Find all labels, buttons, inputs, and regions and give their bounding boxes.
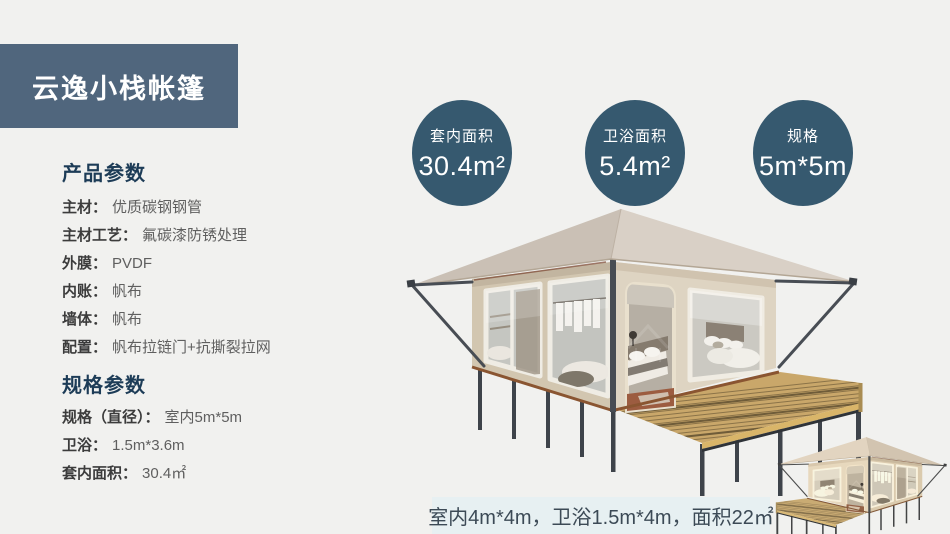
product-title: 云逸小栈帐篷: [32, 67, 206, 106]
param-label: 墙体：: [62, 311, 107, 328]
spec-params-heading: 规格参数: [62, 374, 407, 398]
param-value: 1.5m*3.6m: [112, 437, 185, 454]
param-row-material-craft: 主材工艺：氟碳漆防锈处理: [62, 222, 407, 250]
param-label: 套内面积：: [62, 465, 137, 482]
param-value: 帆布: [112, 311, 142, 328]
param-label: 主材：: [62, 199, 107, 216]
spec-row-bathroom: 卫浴：1.5m*3.6m: [62, 432, 407, 460]
tent-thumbnail-illustration: [758, 432, 950, 534]
spec-row-inner-area: 套内面积：30.4㎡: [62, 460, 407, 488]
param-row-outer-membrane: 外膜：PVDF: [62, 250, 407, 278]
param-value: 帆布: [112, 283, 142, 300]
param-label: 配置：: [62, 339, 107, 356]
stat-label: 套内面积: [430, 125, 494, 146]
param-value: 室内5m*5m: [165, 409, 243, 426]
param-label: 规格（直径）：: [62, 409, 160, 426]
dimensions-caption: 室内4m*4m，卫浴1.5m*4m，面积22㎡: [432, 497, 770, 534]
dimensions-caption-text: 室内4m*4m，卫浴1.5m*4m，面积22㎡: [428, 501, 774, 530]
stat-value: 30.4m²: [418, 151, 505, 182]
param-label: 内账：: [62, 283, 107, 300]
param-value: 优质碳钢钢管: [112, 199, 202, 216]
param-row-material: 主材：优质碳钢钢管: [62, 194, 407, 222]
param-label: 外膜：: [62, 255, 107, 272]
awning-hook-left: [407, 279, 416, 287]
spec-row-size: 规格（直径）：室内5m*5m: [62, 404, 407, 432]
param-row-config: 配置：帆布拉链门+抗撕裂拉网: [62, 334, 407, 362]
stat-circle-bathroom-area: 卫浴面积 5.4m²: [585, 100, 685, 206]
corner-pole: [610, 259, 616, 412]
tent-render-thumbnail: [758, 432, 950, 534]
stat-label: 卫浴面积: [603, 125, 667, 146]
product-title-badge: 云逸小栈帐篷: [0, 44, 238, 128]
param-row-inner-tent: 内账：帆布: [62, 278, 407, 306]
product-params-heading: 产品参数: [62, 162, 407, 186]
stat-label: 规格: [787, 125, 819, 146]
param-value: 30.4㎡: [142, 465, 186, 482]
param-label: 主材工艺：: [62, 227, 137, 244]
awning-hook-right: [848, 277, 857, 285]
param-label: 卫浴：: [62, 437, 107, 454]
slide-page: 云逸小栈帐篷 产品参数 主材：优质碳钢钢管 主材工艺：氟碳漆防锈处理 外膜：PV…: [0, 0, 950, 534]
param-value: PVDF: [112, 255, 152, 272]
param-value: 氟碳漆防锈处理: [142, 227, 247, 244]
stat-value: 5.4m²: [599, 151, 671, 182]
param-value: 帆布拉链门+抗撕裂拉网: [112, 339, 271, 356]
stat-circle-spec: 规格 5m*5m: [753, 100, 853, 206]
param-row-wall: 墙体：帆布: [62, 306, 407, 334]
parameters-sidebar: 产品参数 主材：优质碳钢钢管 主材工艺：氟碳漆防锈处理 外膜：PVDF 内账：帆…: [62, 162, 407, 488]
stat-value: 5m*5m: [759, 151, 847, 182]
stat-circle-inner-area: 套内面积 30.4m²: [412, 100, 512, 206]
